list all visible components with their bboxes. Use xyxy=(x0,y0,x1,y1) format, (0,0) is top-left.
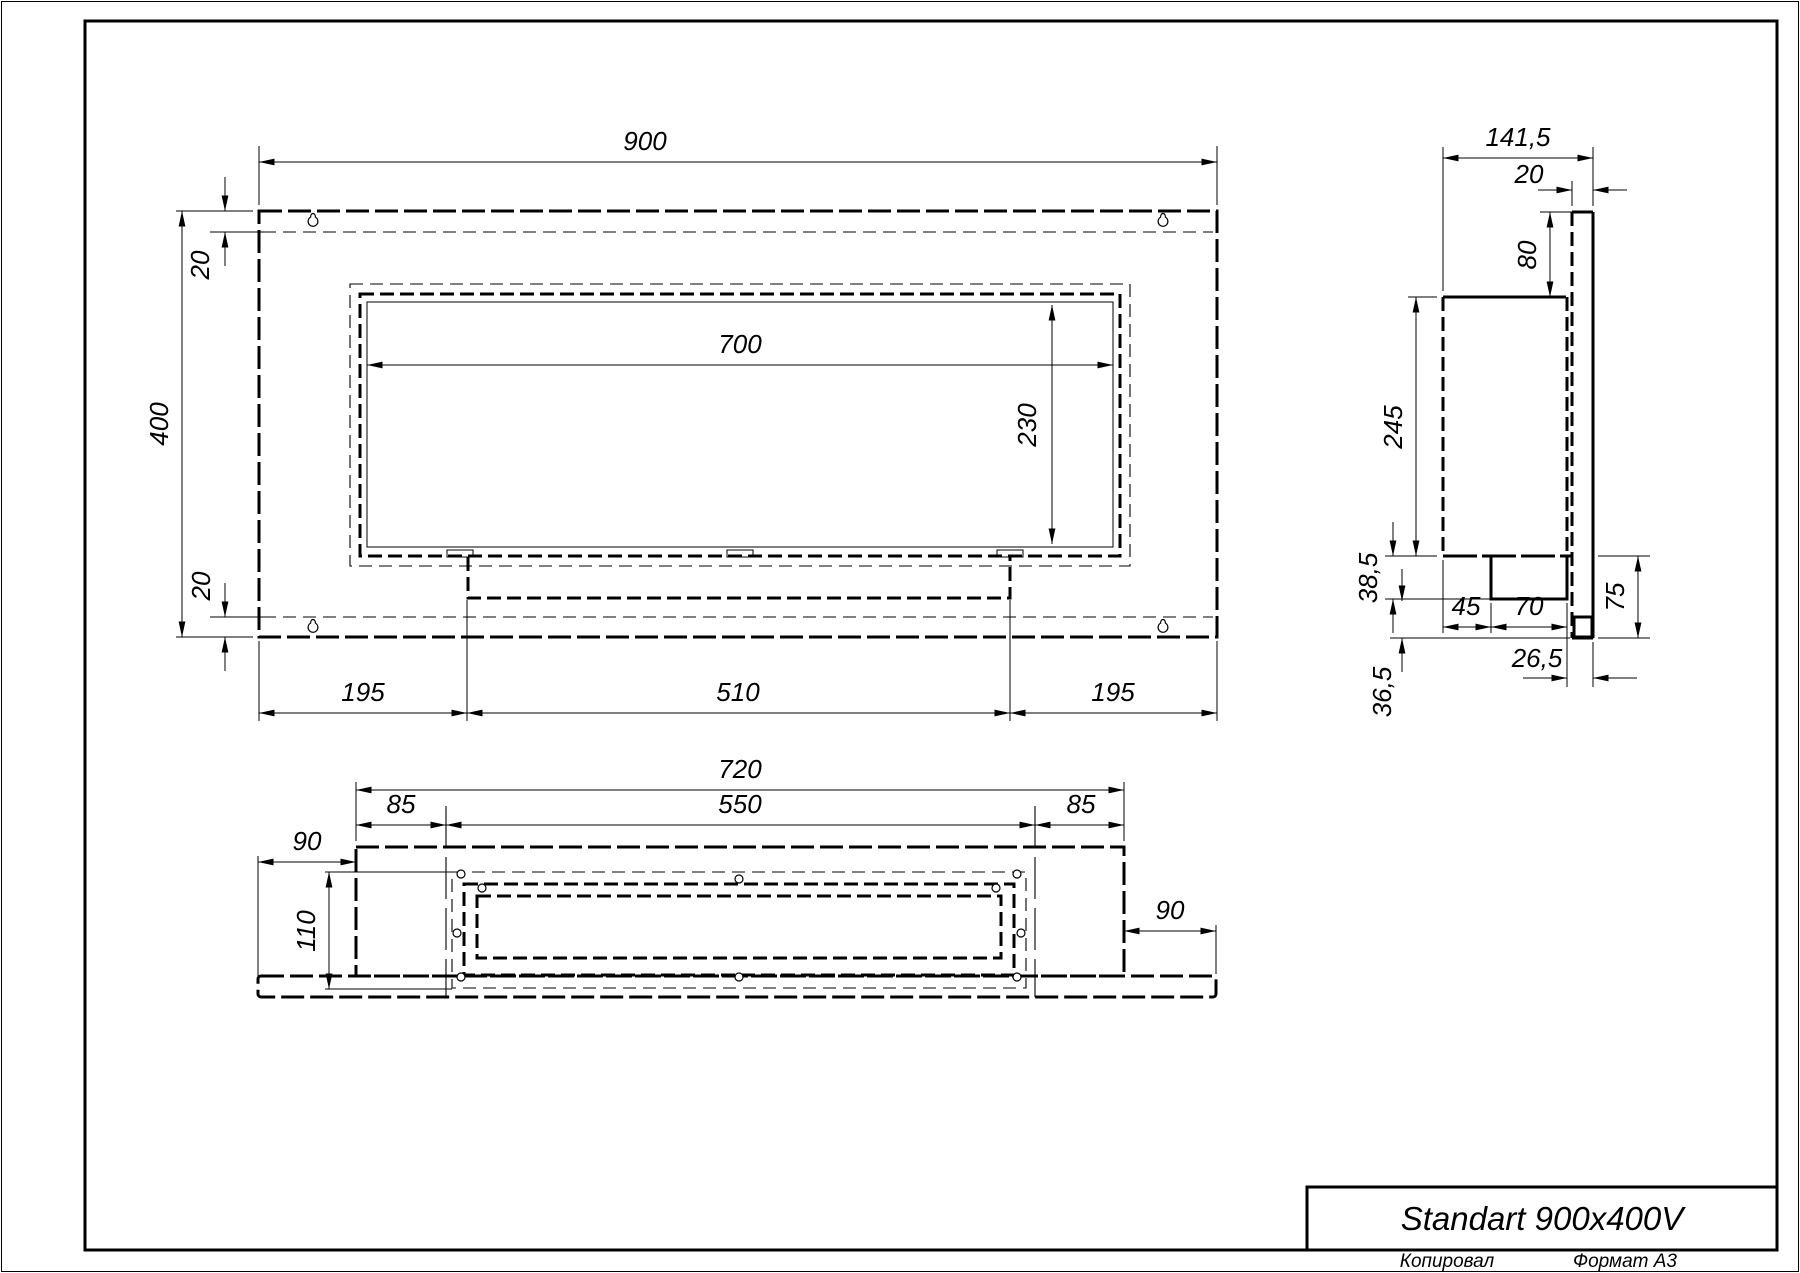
drawing-sheet: 900 400 20 20 700 230 xyxy=(0,0,1800,1273)
bottom-view-geometry xyxy=(258,806,1216,997)
front-view-dimensions: 900 400 20 20 700 230 xyxy=(144,126,1217,721)
front-view-geometry xyxy=(259,211,1217,637)
dim-side-burner-drop: 38,5 xyxy=(1353,552,1383,603)
dim-bottom-plate-right-ext: 90 xyxy=(1156,895,1185,925)
dim-side-burner-width: 70 xyxy=(1515,591,1544,621)
keyhole-icon xyxy=(1158,214,1168,227)
dim-front-overall-height: 400 xyxy=(144,402,174,446)
dim-side-lower-right-height: 75 xyxy=(1600,582,1630,611)
technical-drawing: 900 400 20 20 700 230 xyxy=(0,0,1800,1273)
dim-side-body-height: 245 xyxy=(1378,405,1408,450)
dim-bottom-left-inset: 85 xyxy=(387,789,416,819)
dim-front-opening-width: 700 xyxy=(718,329,762,359)
dim-front-bottom-left: 195 xyxy=(341,677,385,707)
dim-side-lower-left-height: 36,5 xyxy=(1367,666,1397,717)
dim-front-overall-width: 900 xyxy=(623,126,667,156)
dim-bottom-opening-width: 550 xyxy=(718,789,762,819)
dim-side-overall-depth: 141,5 xyxy=(1485,122,1551,152)
dim-side-panel-thickness: 20 xyxy=(1514,159,1544,189)
front-view: 900 400 20 20 700 230 xyxy=(144,126,1217,721)
dim-front-bottom-center: 510 xyxy=(716,677,760,707)
dim-bottom-right-inset: 85 xyxy=(1067,789,1096,819)
dim-front-opening-height: 230 xyxy=(1012,403,1042,448)
bottom-view: 720 85 550 85 90 110 90 xyxy=(258,754,1216,997)
dim-side-panel-above-top: 80 xyxy=(1512,240,1542,269)
copied-label: Копировал xyxy=(1400,1251,1495,1272)
side-view-dimensions: 141,5 20 80 245 38,5 45 xyxy=(1353,122,1650,717)
format-label: Формат А3 xyxy=(1573,1251,1677,1272)
dim-front-bottom-right: 195 xyxy=(1091,677,1135,707)
keyhole-icon xyxy=(1158,620,1168,633)
dim-bottom-depth: 110 xyxy=(291,910,321,952)
dim-bottom-body-width: 720 xyxy=(718,754,762,784)
dim-front-bottom-offset: 20 xyxy=(186,571,216,601)
dim-bottom-plate-left-ext: 90 xyxy=(293,826,322,856)
dim-side-burner-front-gap: 45 xyxy=(1452,591,1481,621)
side-view: 141,5 20 80 245 38,5 45 xyxy=(1353,122,1650,717)
title-block: Standart 900x400V Копировал Формат А3 xyxy=(1307,1187,1777,1272)
keyhole-icon xyxy=(308,620,318,633)
keyhole-icon xyxy=(308,214,318,227)
dim-front-top-offset: 20 xyxy=(185,250,215,280)
drawing-title: Standart 900x400V xyxy=(1401,1200,1687,1237)
dim-side-burner-to-panel: 26,5 xyxy=(1511,643,1563,673)
